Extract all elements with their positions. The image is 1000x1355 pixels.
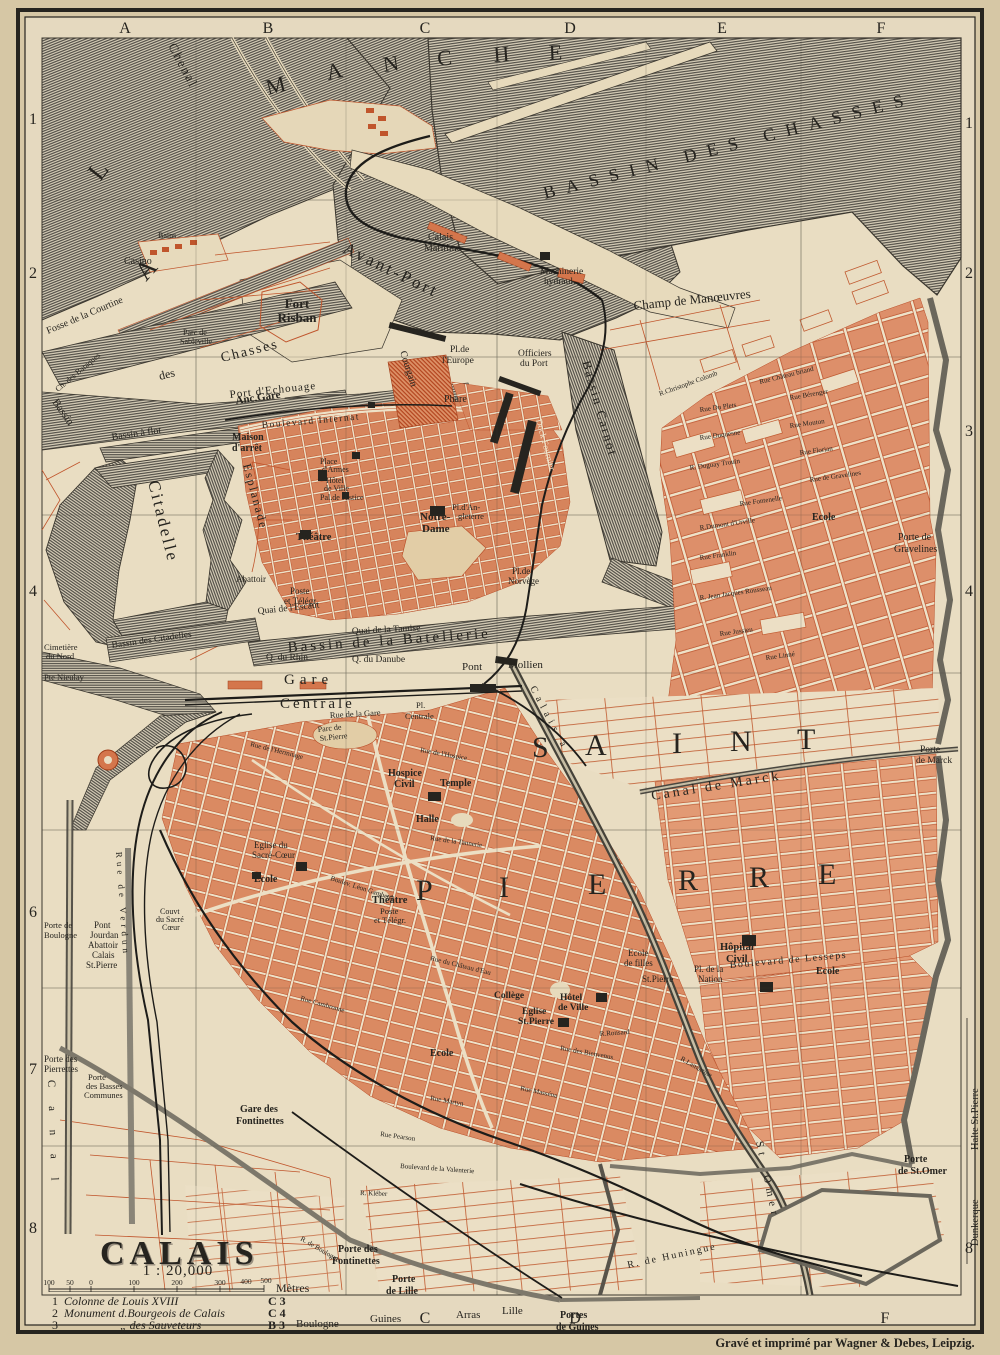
- svg-text:R: R: [749, 861, 769, 894]
- svg-text:Ecole: Ecole: [430, 1048, 454, 1059]
- svg-text:d'Armes: d'Armes: [322, 465, 349, 474]
- svg-text:P: P: [416, 874, 433, 907]
- svg-text:B: B: [263, 20, 274, 37]
- svg-text:d'arrêt: d'arrêt: [232, 443, 263, 454]
- svg-text:de filles: de filles: [624, 958, 653, 968]
- svg-text:Mollien: Mollien: [508, 659, 543, 671]
- svg-text:100: 100: [43, 1278, 55, 1287]
- svg-text:Norvège: Norvège: [508, 576, 539, 586]
- svg-text:Centrale: Centrale: [405, 711, 434, 721]
- svg-text:Halle: Halle: [416, 814, 439, 825]
- svg-text:de Lille: de Lille: [386, 1286, 419, 1297]
- svg-text:4: 4: [965, 583, 973, 600]
- svg-text:Dunkerque: Dunkerque: [970, 1199, 981, 1246]
- svg-text:Q. du Danube: Q. du Danube: [352, 655, 405, 665]
- svg-text:I: I: [672, 727, 682, 760]
- svg-text:300: 300: [214, 1278, 226, 1287]
- svg-text:Porte de: Porte de: [898, 532, 932, 543]
- svg-text:Arras: Arras: [456, 1309, 480, 1321]
- svg-text:200: 200: [171, 1278, 183, 1287]
- svg-text:Lille: Lille: [502, 1305, 523, 1317]
- svg-text:de Ville: de Ville: [558, 1003, 588, 1013]
- svg-text:Pl.de: Pl.de: [450, 345, 469, 355]
- svg-text:1: 1: [29, 111, 37, 128]
- svg-text:Gare des: Gare des: [240, 1104, 278, 1115]
- svg-text:Maritime: Maritime: [424, 243, 462, 254]
- svg-text:N: N: [730, 725, 752, 758]
- svg-text:Pte Nieulay: Pte Nieulay: [44, 672, 85, 682]
- svg-text:Porte des: Porte des: [338, 1244, 378, 1255]
- svg-text:2: 2: [965, 265, 973, 282]
- svg-text:de Guines: de Guines: [556, 1322, 599, 1333]
- svg-text:Porte: Porte: [920, 745, 940, 755]
- svg-text:Sacré-Cœur: Sacré-Cœur: [252, 850, 295, 860]
- svg-text:Porte: Porte: [904, 1154, 928, 1165]
- svg-text:Civil: Civil: [394, 779, 415, 790]
- svg-text:E: E: [717, 20, 727, 37]
- svg-text:2: 2: [29, 265, 37, 282]
- svg-text:Mètres: Mètres: [276, 1281, 310, 1295]
- svg-text:Poste: Poste: [290, 586, 310, 596]
- svg-text:50: 50: [66, 1278, 74, 1287]
- svg-text:1: 1: [965, 115, 973, 132]
- svg-text:D: D: [564, 20, 576, 37]
- svg-text:Abattoir: Abattoir: [88, 940, 118, 950]
- svg-text:Hôpital: Hôpital: [720, 942, 754, 953]
- svg-text:Collège: Collège: [494, 991, 524, 1001]
- svg-text:Hôtel: Hôtel: [560, 993, 583, 1003]
- svg-text:Boulogne: Boulogne: [296, 1318, 339, 1330]
- svg-text:C: C: [420, 1310, 431, 1327]
- svg-text:Jourdan: Jourdan: [90, 930, 119, 940]
- svg-text:C: C: [420, 20, 431, 37]
- svg-text:Fontinettes: Fontinettes: [236, 1116, 284, 1127]
- svg-text:Porte: Porte: [392, 1274, 416, 1285]
- svg-text:hydraul.: hydraul.: [544, 277, 575, 287]
- svg-text:Eglise: Eglise: [522, 1007, 546, 1017]
- svg-text:Porte des: Porte des: [44, 1054, 78, 1064]
- svg-text:Officiers: Officiers: [518, 348, 552, 359]
- svg-text:Gravé et imprimé par Wagner &: Gravé et imprimé par Wagner & Debes, Lei…: [715, 1336, 974, 1350]
- svg-text:Nation: Nation: [698, 974, 723, 984]
- svg-text:3: 3: [52, 1318, 58, 1332]
- svg-text:Ecole: Ecole: [812, 512, 836, 523]
- svg-text:et Télégr.: et Télégr.: [374, 915, 406, 925]
- svg-text:Guines: Guines: [370, 1313, 401, 1325]
- svg-text:Notre-: Notre-: [420, 511, 451, 523]
- svg-text:l'Europe: l'Europe: [442, 356, 474, 366]
- svg-text:4: 4: [29, 583, 37, 600]
- svg-text:Bains: Bains: [158, 231, 176, 240]
- svg-text:de Ville: de Ville: [324, 484, 349, 493]
- svg-text:7: 7: [29, 1061, 37, 1078]
- svg-text:Cœur: Cœur: [162, 923, 180, 932]
- svg-text:gleterre: gleterre: [458, 511, 484, 521]
- svg-text:du Port: du Port: [520, 359, 548, 369]
- svg-text:F: F: [877, 20, 886, 37]
- svg-text:C: C: [436, 45, 453, 71]
- svg-text:E: E: [588, 868, 606, 901]
- svg-text:Calais: Calais: [428, 232, 453, 243]
- svg-text:de Marck: de Marck: [916, 756, 952, 766]
- svg-text:Halte St.Pierre: Halte St.Pierre: [970, 1088, 981, 1150]
- svg-text:„ des Sauveteurs: „ des Sauveteurs: [120, 1318, 202, 1332]
- svg-text:100: 100: [128, 1278, 140, 1287]
- svg-text:Théâtre: Théâtre: [296, 532, 332, 543]
- svg-text:8: 8: [29, 1220, 37, 1237]
- svg-text:Pl.: Pl.: [416, 700, 425, 710]
- svg-text:Portes: Portes: [560, 1310, 587, 1321]
- svg-text:Pont: Pont: [94, 920, 111, 930]
- svg-text:Ecole: Ecole: [628, 948, 649, 958]
- svg-text:Parc de: Parc de: [183, 328, 207, 337]
- svg-text:Pierrettes: Pierrettes: [44, 1064, 78, 1074]
- svg-text:Risban: Risban: [277, 310, 317, 325]
- svg-text:Temple: Temple: [440, 778, 472, 789]
- svg-text:A: A: [119, 20, 131, 37]
- svg-text:St.Pierre: St.Pierre: [86, 960, 117, 970]
- svg-text:Gravelines: Gravelines: [894, 544, 937, 555]
- svg-text:Pont: Pont: [462, 661, 482, 673]
- svg-text:Ecole: Ecole: [816, 966, 840, 977]
- svg-text:1 : 20,000: 1 : 20,000: [143, 1263, 213, 1279]
- svg-text:Calais: Calais: [92, 950, 115, 960]
- svg-text:F: F: [881, 1310, 890, 1327]
- svg-text:Eglise du: Eglise du: [254, 840, 288, 850]
- svg-text:R. Kléber: R. Kléber: [360, 1189, 388, 1198]
- svg-text:St.Pierre: St.Pierre: [642, 974, 673, 984]
- svg-text:400: 400: [240, 1277, 252, 1286]
- svg-text:Porte de: Porte de: [44, 920, 72, 930]
- svg-text:Hospice: Hospice: [388, 768, 422, 779]
- svg-text:E: E: [818, 858, 836, 891]
- svg-text:Boulogne: Boulogne: [44, 930, 77, 940]
- svg-text:E: E: [548, 40, 562, 65]
- svg-text:R: R: [678, 864, 698, 897]
- svg-text:500: 500: [260, 1276, 272, 1285]
- svg-text:3: 3: [965, 423, 973, 440]
- svg-text:Casino: Casino: [124, 256, 152, 267]
- svg-text:T: T: [797, 723, 815, 756]
- svg-text:Dame: Dame: [422, 523, 450, 535]
- svg-text:de St.Omer: de St.Omer: [898, 1166, 947, 1177]
- svg-text:Fort: Fort: [285, 296, 310, 311]
- svg-text:Pal.de Justice: Pal.de Justice: [320, 493, 364, 502]
- svg-text:6: 6: [29, 904, 37, 921]
- svg-text:Pl.de: Pl.de: [512, 566, 530, 576]
- svg-text:Ecole: Ecole: [254, 874, 278, 885]
- svg-text:Phare: Phare: [444, 394, 467, 405]
- svg-text:S: S: [532, 731, 549, 764]
- svg-text:0: 0: [89, 1278, 93, 1287]
- svg-text:St.Pierre: St.Pierre: [518, 1017, 554, 1027]
- svg-text:Machinerie: Machinerie: [540, 267, 583, 277]
- svg-text:H: H: [493, 41, 511, 67]
- svg-text:Abattoir: Abattoir: [236, 574, 266, 584]
- svg-text:I: I: [499, 871, 509, 904]
- svg-text:Maison: Maison: [232, 432, 264, 443]
- svg-text:Pl. de la: Pl. de la: [694, 964, 723, 974]
- svg-text:Gare: Gare: [284, 672, 333, 688]
- svg-text:B 3: B 3: [268, 1318, 285, 1332]
- svg-text:du Nord: du Nord: [46, 651, 75, 661]
- svg-text:Communes: Communes: [84, 1090, 123, 1100]
- svg-text:A: A: [585, 729, 607, 762]
